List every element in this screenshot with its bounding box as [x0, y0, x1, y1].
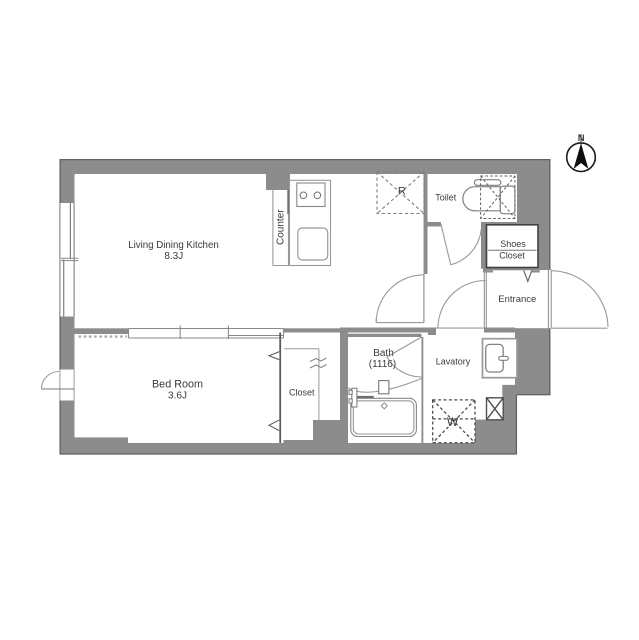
svg-text:Bath: Bath: [373, 348, 394, 359]
svg-text:8.3J: 8.3J: [164, 251, 183, 262]
svg-text:Entrance: Entrance: [498, 294, 536, 305]
svg-text:(1116): (1116): [369, 359, 396, 370]
svg-text:Bed Room: Bed Room: [152, 378, 203, 390]
svg-text:W: W: [447, 415, 459, 429]
svg-text:Shoes: Shoes: [500, 239, 526, 249]
svg-text:Living Dining Kitchen: Living Dining Kitchen: [128, 240, 218, 251]
svg-text:Closet: Closet: [289, 387, 315, 397]
svg-text:N: N: [578, 133, 585, 144]
svg-text:Closet: Closet: [499, 250, 525, 260]
svg-text:Toilet: Toilet: [435, 192, 457, 202]
svg-text:R: R: [398, 186, 406, 198]
svg-text:Lavatory: Lavatory: [436, 356, 471, 366]
svg-text:3.6J: 3.6J: [168, 390, 187, 401]
svg-text:Counter: Counter: [275, 209, 286, 245]
